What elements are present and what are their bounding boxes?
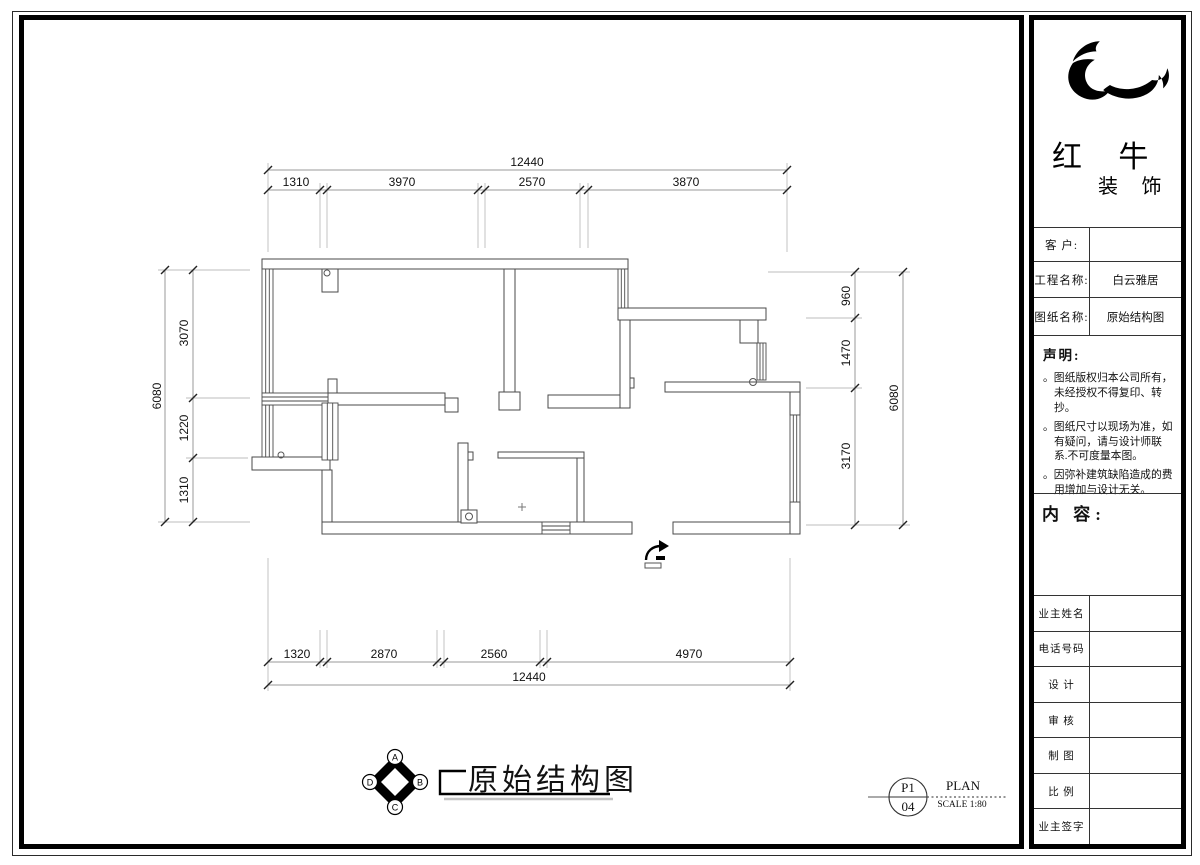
dim-top-seg4: 3870 (673, 175, 700, 189)
scale-label: 比 例 (1034, 774, 1090, 809)
field-row-client: 客 户: (1034, 227, 1181, 261)
field-row-project: 工程名称: 白云雅居 (1034, 261, 1181, 297)
dim-bottom-total: 12440 (512, 670, 546, 684)
sheet-number-group: P1 04 PLAN SCALE 1:80 (868, 778, 1008, 816)
drawing-name-value: 原始结构图 (1090, 298, 1181, 335)
brand-logo-zone: 红 牛 装 饰 (1034, 20, 1181, 227)
statement-section: 声明: 。图纸版权归本公司所有，未经授权不得复印、转抄。 。图纸尺寸以现场为准，… (1034, 335, 1181, 493)
client-value (1090, 228, 1181, 261)
sheet-number-top: P1 (901, 780, 915, 795)
owner-signature-label: 业主签字 (1034, 809, 1090, 844)
dim-right-seg1: 960 (839, 286, 853, 306)
reviewer-value (1090, 703, 1181, 738)
reviewer-label: 审 核 (1034, 703, 1090, 738)
dim-top-seg2: 3970 (389, 175, 416, 189)
dim-left-seg2: 1220 (177, 414, 191, 441)
statement-heading: 声明: (1043, 344, 1175, 364)
plan-title: 原始结构图 (468, 764, 638, 797)
dim-right-seg3: 3170 (839, 442, 853, 469)
title-block: 红 牛 装 饰 客 户: 工程名称: 白云雅居 图纸名称: 原始结构图 声明: … (1029, 15, 1186, 849)
dim-bottom-seg1: 1320 (284, 647, 311, 661)
owner-signature-value (1090, 809, 1181, 844)
dim-top-seg3: 2570 (519, 175, 546, 189)
field-row-drawing-name: 图纸名称: 原始结构图 (1034, 297, 1181, 335)
sign-row-drafter: 制 图 (1034, 737, 1181, 773)
designer-label: 设 计 (1034, 667, 1090, 702)
dim-left-seg3: 1310 (177, 476, 191, 503)
project-value: 白云雅居 (1090, 262, 1181, 297)
compass-label-c: C (392, 803, 399, 813)
drawing-name-label: 图纸名称: (1034, 298, 1090, 335)
sheet-type-label: PLAN (946, 778, 981, 793)
content-section: 内 容: (1034, 493, 1181, 595)
statement-item: 。图纸尺寸以现场为准，如有疑问，请与设计师联系.不可度量本图。 (1043, 420, 1175, 465)
drafter-value (1090, 738, 1181, 773)
drafter-label: 制 图 (1034, 738, 1090, 773)
sign-row-owner-signature: 业主签字 (1034, 808, 1181, 844)
sign-row-owner-name: 业主姓名 (1034, 595, 1181, 631)
dim-top-total: 12440 (510, 155, 544, 169)
bull-logo-icon (1056, 34, 1174, 126)
compass-icon: A B C D (363, 750, 428, 815)
floor-plan-canvas: 12440 1310 3970 2570 3870 1320 2870 2560… (0, 0, 1030, 865)
sheet-number-bottom: 04 (902, 799, 916, 814)
designer-value (1090, 667, 1181, 702)
dim-top-seg1: 1310 (283, 175, 310, 189)
phone-value (1090, 632, 1181, 667)
compass-label-a: A (392, 753, 398, 763)
owner-name-value (1090, 596, 1181, 631)
dim-right-seg2: 1470 (839, 339, 853, 366)
content-heading: 内 容: (1042, 500, 1173, 525)
plan-title-group: 原始结构图 (440, 764, 638, 799)
compass-label-b: B (417, 778, 423, 788)
dim-bottom-seg3: 2560 (481, 647, 508, 661)
statement-item: 。图纸版权归本公司所有，未经授权不得复印、转抄。 (1043, 371, 1175, 416)
brand-suffix: 装 饰 (1098, 170, 1171, 199)
sign-row-reviewer: 审 核 (1034, 702, 1181, 738)
drawing-sheet: 12440 1310 3970 2570 3870 1320 2870 2560… (0, 0, 1200, 865)
sign-row-scale: 比 例 (1034, 773, 1181, 809)
dim-left-total: 6080 (150, 382, 164, 409)
sheet-scale-label: SCALE 1:80 (937, 800, 987, 810)
client-label: 客 户: (1034, 228, 1090, 261)
phone-label: 电话号码 (1034, 632, 1090, 667)
dim-right-total: 6080 (887, 384, 901, 411)
sign-row-designer: 设 计 (1034, 666, 1181, 702)
compass-label-d: D (367, 778, 374, 788)
sign-row-phone: 电话号码 (1034, 631, 1181, 667)
dim-bottom-seg2: 2870 (371, 647, 398, 661)
floor-plan-walls (252, 259, 800, 534)
dim-bottom-seg4: 4970 (676, 647, 703, 661)
dim-left-seg1: 3070 (177, 319, 191, 346)
entrance-arrow-icon (645, 540, 669, 568)
project-label: 工程名称: (1034, 262, 1090, 297)
scale-value (1090, 774, 1181, 809)
owner-name-label: 业主姓名 (1034, 596, 1090, 631)
